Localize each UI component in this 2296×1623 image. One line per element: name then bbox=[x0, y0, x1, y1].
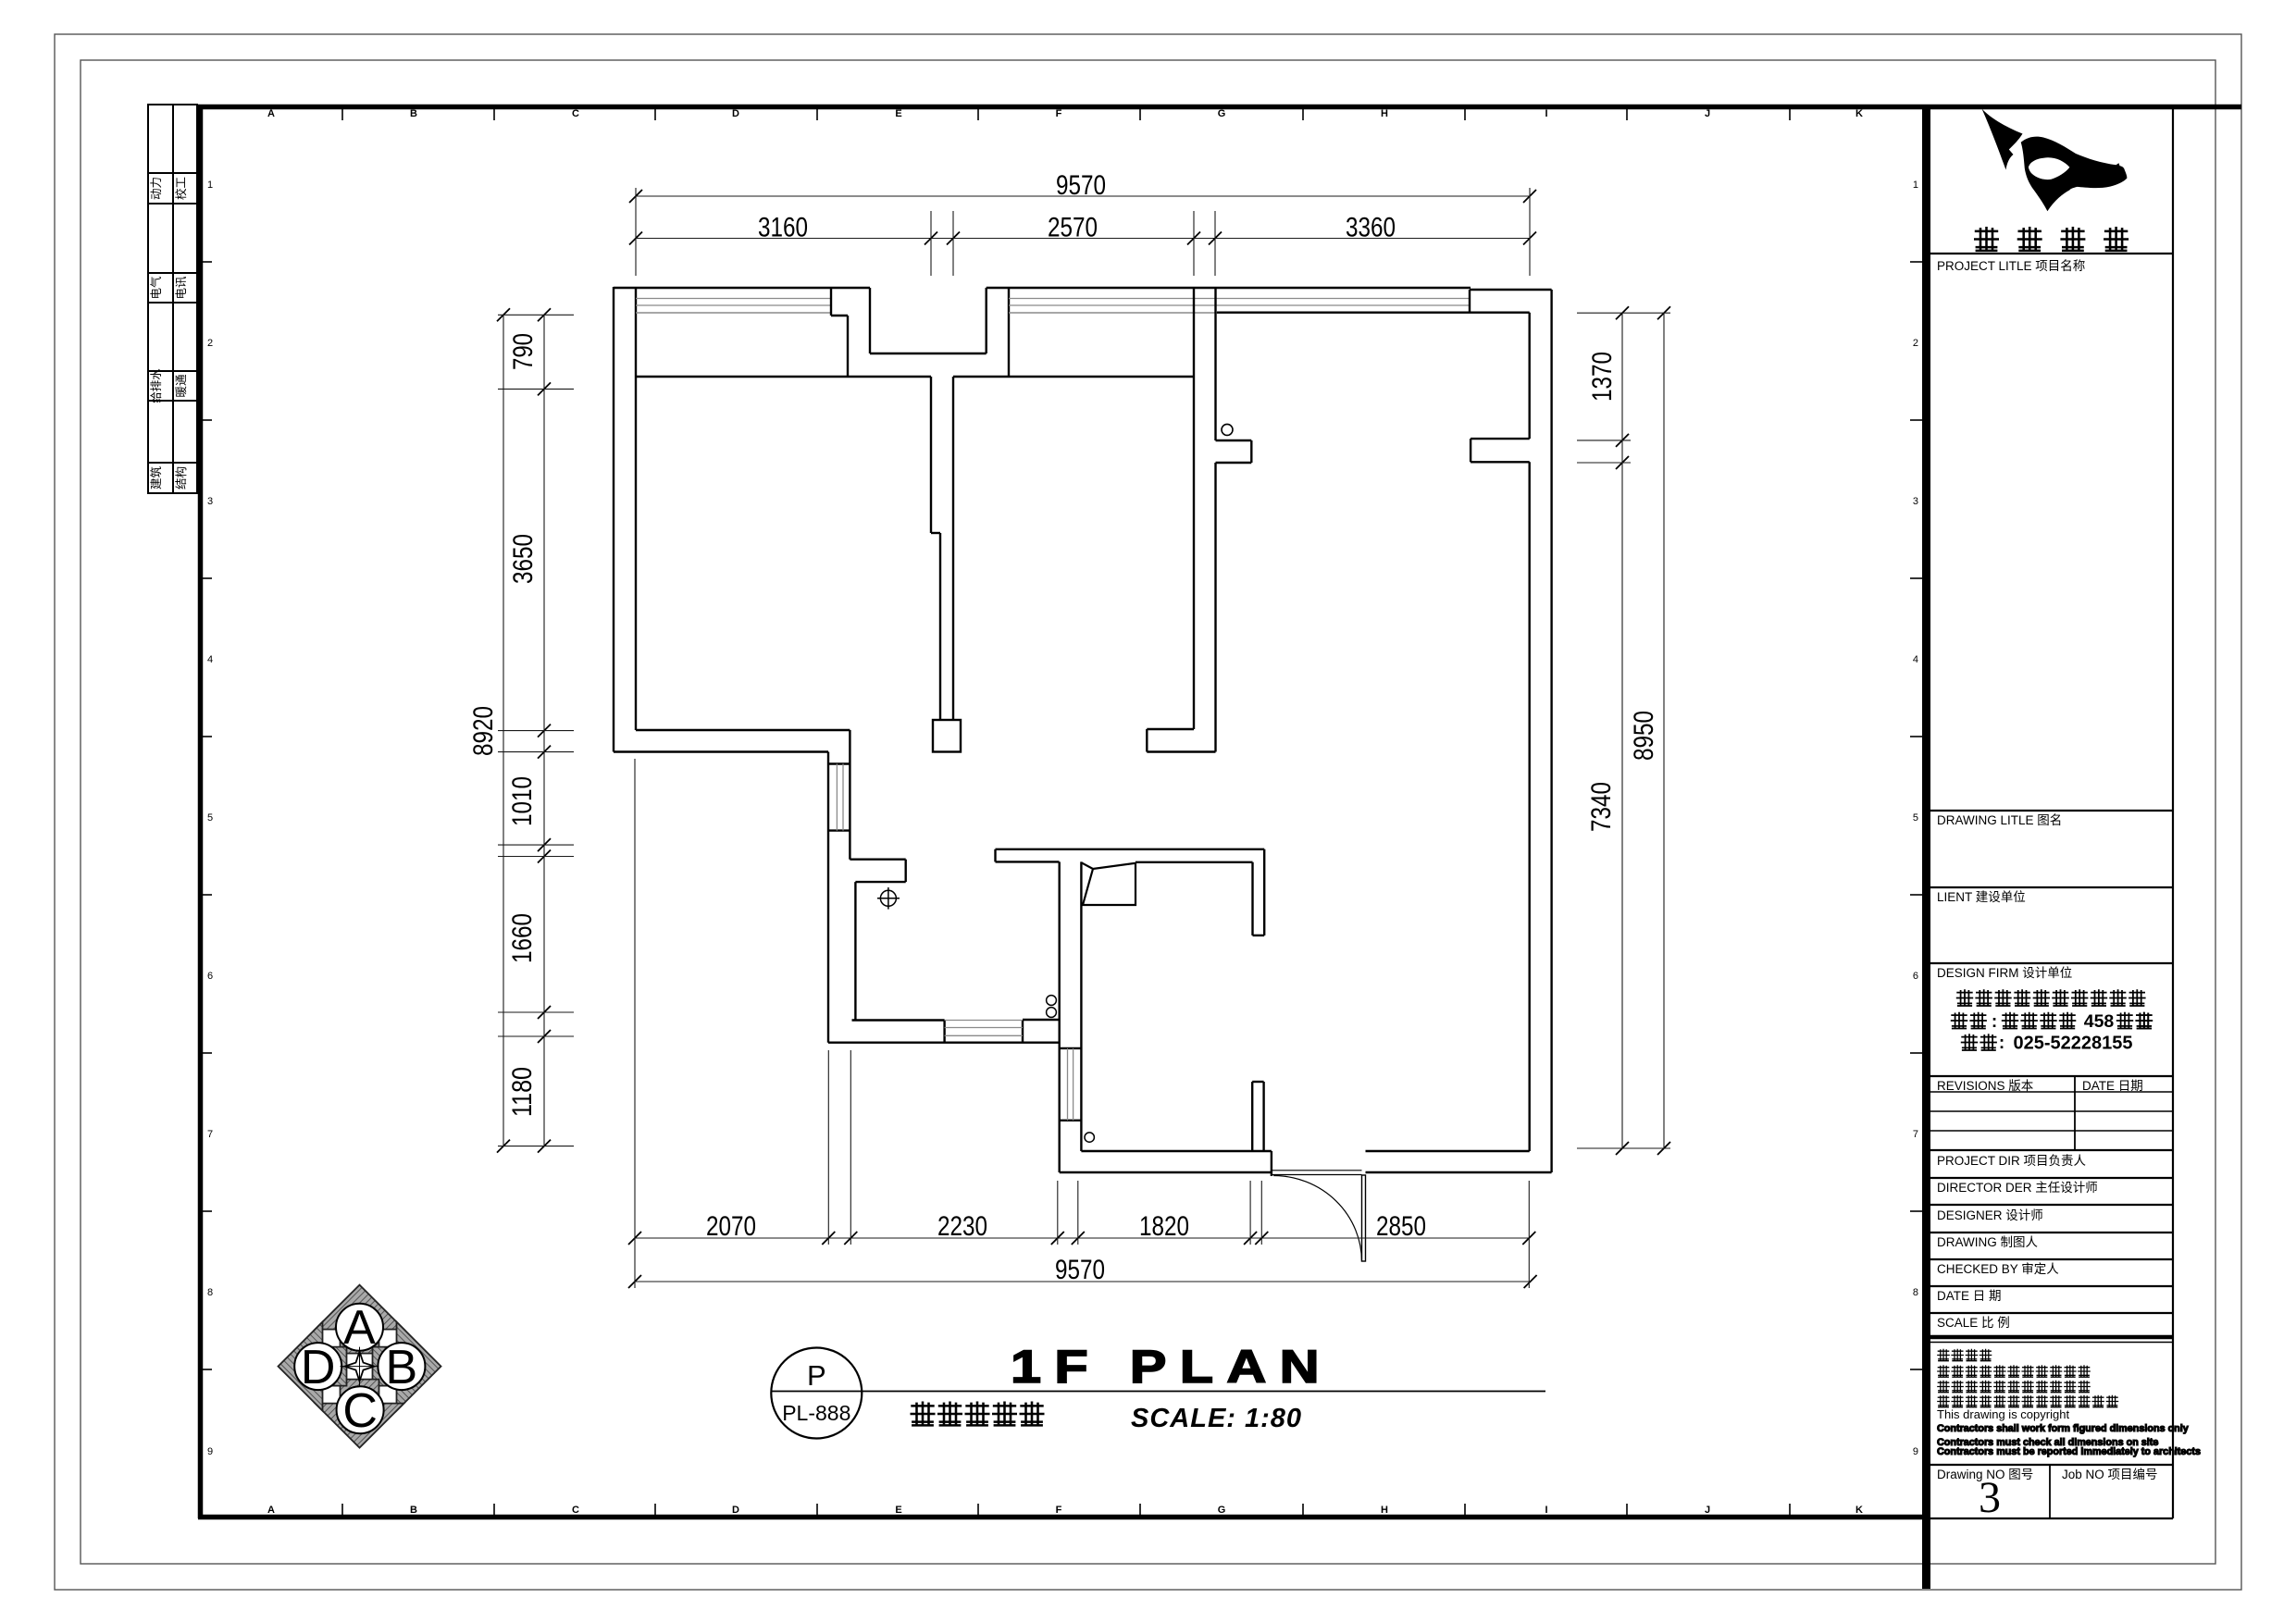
svg-text:电讯: 电讯 bbox=[175, 276, 188, 300]
svg-text:G: G bbox=[1218, 1505, 1226, 1516]
svg-text:2850: 2850 bbox=[1376, 1211, 1426, 1242]
svg-text:1660: 1660 bbox=[507, 913, 538, 963]
svg-text:结构: 结构 bbox=[174, 466, 188, 489]
svg-text:D: D bbox=[301, 1341, 336, 1394]
svg-text:J: J bbox=[1705, 1505, 1710, 1516]
svg-text:给排水: 给排水 bbox=[150, 368, 163, 403]
svg-text:4: 4 bbox=[207, 654, 213, 665]
svg-text:F: F bbox=[1056, 108, 1062, 119]
svg-text:1010: 1010 bbox=[507, 776, 538, 826]
svg-text:1820: 1820 bbox=[1139, 1211, 1189, 1242]
svg-text:458: 458 bbox=[2084, 1011, 2115, 1032]
svg-text:9: 9 bbox=[1913, 1446, 1918, 1457]
svg-text:SCALE: 1:80: SCALE: 1:80 bbox=[1131, 1404, 1302, 1433]
svg-text:5: 5 bbox=[207, 812, 213, 824]
svg-text:5: 5 bbox=[1913, 812, 1918, 824]
svg-text:3: 3 bbox=[1979, 1473, 2001, 1522]
svg-text:J: J bbox=[1705, 108, 1710, 119]
svg-text::: : bbox=[1999, 1034, 2004, 1053]
svg-text:C: C bbox=[572, 108, 579, 119]
svg-text:A: A bbox=[343, 1301, 376, 1355]
svg-text:E: E bbox=[895, 108, 901, 119]
svg-text:B: B bbox=[410, 1505, 417, 1516]
svg-text:025-52228155: 025-52228155 bbox=[2013, 1034, 2132, 1054]
svg-text:790: 790 bbox=[508, 333, 539, 370]
svg-text:D: D bbox=[732, 1505, 739, 1516]
svg-text:B: B bbox=[386, 1341, 418, 1394]
svg-text:DRAWING 制图人: DRAWING 制图人 bbox=[1937, 1235, 2038, 1249]
svg-text:D: D bbox=[732, 108, 739, 119]
svg-text:REVISIONS 版本: REVISIONS 版本 bbox=[1937, 1079, 2034, 1093]
svg-text:暖通: 暖通 bbox=[175, 374, 188, 398]
svg-text:DRAWING LITLE 图名: DRAWING LITLE 图名 bbox=[1937, 813, 2062, 827]
svg-text:C: C bbox=[342, 1384, 378, 1438]
svg-text:PROJECT DIR 项目负责人: PROJECT DIR 项目负责人 bbox=[1937, 1154, 2087, 1168]
svg-text:E: E bbox=[895, 1505, 901, 1516]
svg-text:校工: 校工 bbox=[174, 177, 188, 200]
svg-text:B: B bbox=[410, 108, 417, 119]
svg-text:SCALE 比 例: SCALE 比 例 bbox=[1937, 1316, 2010, 1330]
svg-text:H: H bbox=[1381, 1505, 1388, 1516]
svg-text:9570: 9570 bbox=[1056, 170, 1106, 201]
svg-text:9: 9 bbox=[207, 1446, 213, 1457]
svg-text:1F PLAN: 1F PLAN bbox=[1011, 1341, 1333, 1393]
svg-text:3650: 3650 bbox=[508, 534, 539, 584]
svg-text:This drawing is copyright: This drawing is copyright bbox=[1937, 1407, 2069, 1421]
svg-text:7: 7 bbox=[1913, 1129, 1918, 1140]
svg-text:A: A bbox=[267, 108, 275, 119]
svg-text:2: 2 bbox=[1913, 338, 1918, 349]
svg-text:K: K bbox=[1855, 108, 1863, 119]
svg-text:2570: 2570 bbox=[1048, 213, 1098, 243]
svg-text:DESIGN FIRM 设计单位: DESIGN FIRM 设计单位 bbox=[1937, 966, 2072, 980]
svg-text:3160: 3160 bbox=[758, 213, 808, 243]
svg-text:DATE 日期: DATE 日期 bbox=[2082, 1079, 2143, 1093]
svg-text:9570: 9570 bbox=[1055, 1255, 1105, 1285]
svg-text:2: 2 bbox=[207, 338, 213, 349]
svg-text:8: 8 bbox=[1913, 1287, 1918, 1298]
svg-text:I: I bbox=[1545, 1505, 1547, 1516]
svg-text:7: 7 bbox=[207, 1129, 213, 1140]
svg-text:7340: 7340 bbox=[1586, 782, 1617, 832]
svg-text:PROJECT LITLE 项目名称: PROJECT LITLE 项目名称 bbox=[1937, 259, 2085, 273]
svg-text:Contractors shall work form fi: Contractors shall work form figured dime… bbox=[1937, 1423, 2189, 1434]
svg-text:3: 3 bbox=[207, 496, 213, 507]
svg-text:8950: 8950 bbox=[1629, 711, 1659, 761]
svg-text:8920: 8920 bbox=[468, 706, 499, 756]
svg-text:Job NO 项目编号: Job NO 项目编号 bbox=[2062, 1468, 2158, 1481]
svg-text:6: 6 bbox=[207, 971, 213, 982]
svg-text:1: 1 bbox=[207, 180, 213, 191]
svg-text:1370: 1370 bbox=[1587, 352, 1618, 402]
svg-text:C: C bbox=[572, 1505, 579, 1516]
svg-text:G: G bbox=[1218, 108, 1226, 119]
svg-text::: : bbox=[1992, 1012, 1997, 1032]
svg-text:K: K bbox=[1855, 1505, 1863, 1516]
svg-text:建筑: 建筑 bbox=[149, 466, 163, 490]
svg-text:DATE 日 期: DATE 日 期 bbox=[1937, 1289, 2002, 1303]
svg-text:LIENT 建设单位: LIENT 建设单位 bbox=[1937, 890, 2026, 904]
svg-text:F: F bbox=[1056, 1505, 1062, 1516]
svg-text:4: 4 bbox=[1913, 654, 1918, 665]
svg-text:6: 6 bbox=[1913, 971, 1918, 982]
svg-text:I: I bbox=[1545, 108, 1547, 119]
svg-text:3: 3 bbox=[1913, 496, 1918, 507]
svg-text:2070: 2070 bbox=[706, 1211, 756, 1242]
svg-text:P: P bbox=[807, 1359, 826, 1392]
svg-text:1180: 1180 bbox=[507, 1067, 538, 1117]
svg-text:电气: 电气 bbox=[149, 276, 163, 300]
svg-text:2230: 2230 bbox=[937, 1211, 987, 1242]
svg-text:动力: 动力 bbox=[150, 177, 163, 200]
svg-text:Contractors must be reported i: Contractors must be reported immediately… bbox=[1937, 1446, 2201, 1457]
svg-text:A: A bbox=[267, 1505, 275, 1516]
svg-text:8: 8 bbox=[207, 1287, 213, 1298]
svg-text:CHECKED BY 审定人: CHECKED BY 审定人 bbox=[1937, 1262, 2059, 1276]
svg-text:DESIGNER 设计师: DESIGNER 设计师 bbox=[1937, 1208, 2043, 1222]
svg-text:DIRECTOR DER 主任设计师: DIRECTOR DER 主任设计师 bbox=[1937, 1181, 2098, 1195]
svg-text:3360: 3360 bbox=[1346, 213, 1396, 243]
svg-text:1: 1 bbox=[1913, 180, 1918, 191]
svg-text:H: H bbox=[1381, 108, 1388, 119]
svg-text:PL-888: PL-888 bbox=[782, 1401, 850, 1425]
